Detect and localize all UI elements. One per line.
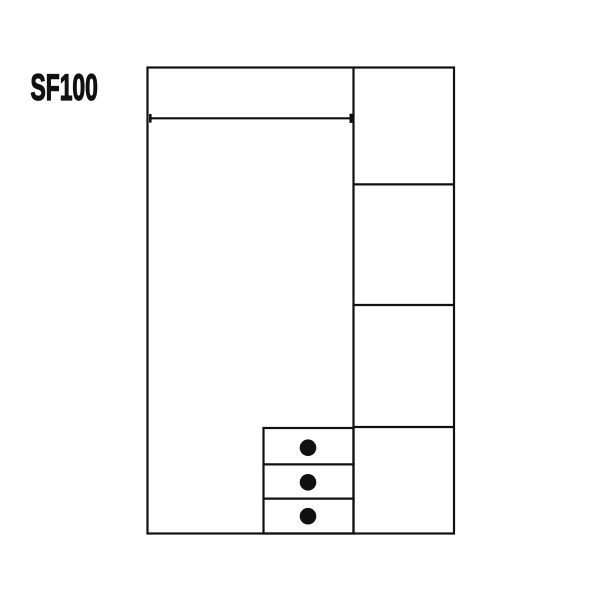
- svg-text:SF100: SF100: [31, 66, 98, 108]
